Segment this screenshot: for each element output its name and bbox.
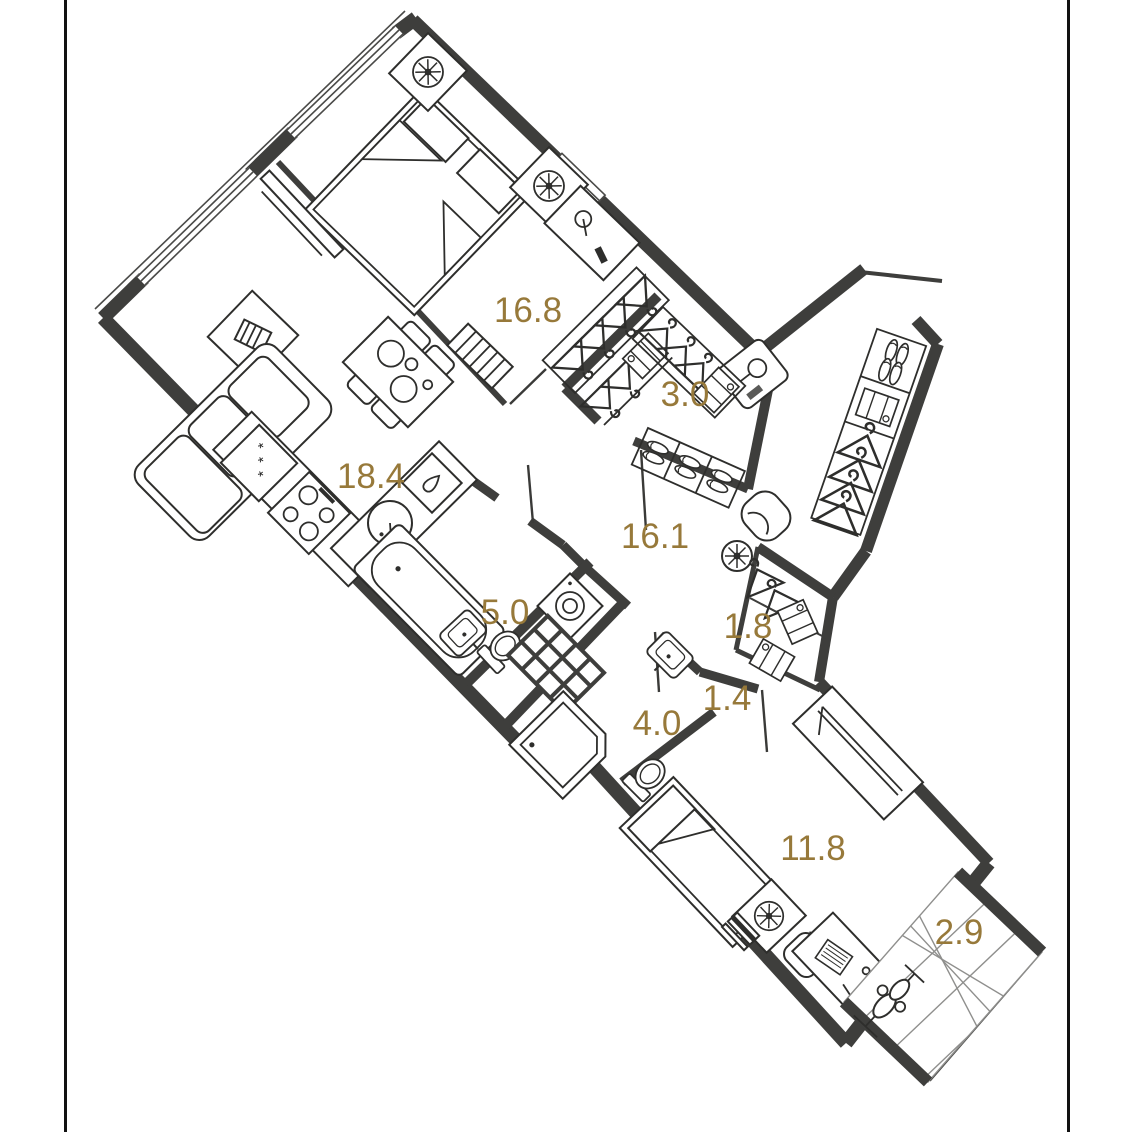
wardrobe2-icon [793, 687, 923, 820]
room-label-bedroom-second: 11.8 [780, 829, 846, 868]
shoe-rack-icon [632, 428, 745, 508]
room-label-bathroom: 5.0 [481, 593, 530, 632]
double-bed-icon [305, 87, 532, 315]
floor-plan-page: * * * [0, 0, 1132, 1132]
room-label-bedroom-main: 16.8 [494, 291, 562, 330]
room-label-living-kitchen: 18.4 [337, 457, 405, 496]
shower-sink-icon [640, 630, 694, 684]
window-bedroom [287, 26, 403, 138]
armchair-icon [735, 485, 797, 547]
room-label-shower-room: 4.0 [633, 704, 682, 743]
room-label-corridor: 1.4 [703, 679, 752, 718]
room-label-balcony: 2.9 [935, 913, 984, 952]
room-label-hallway: 16.1 [621, 517, 689, 556]
floor-plan-svg: * * * [0, 0, 1132, 1132]
window-living [137, 168, 257, 285]
plant-icon [722, 541, 752, 571]
room-label-wardrobe: 3.0 [661, 375, 710, 414]
dining-table-icon [333, 307, 463, 437]
room-label-closet: 1.8 [724, 607, 773, 646]
nightstand-icon [389, 33, 467, 111]
